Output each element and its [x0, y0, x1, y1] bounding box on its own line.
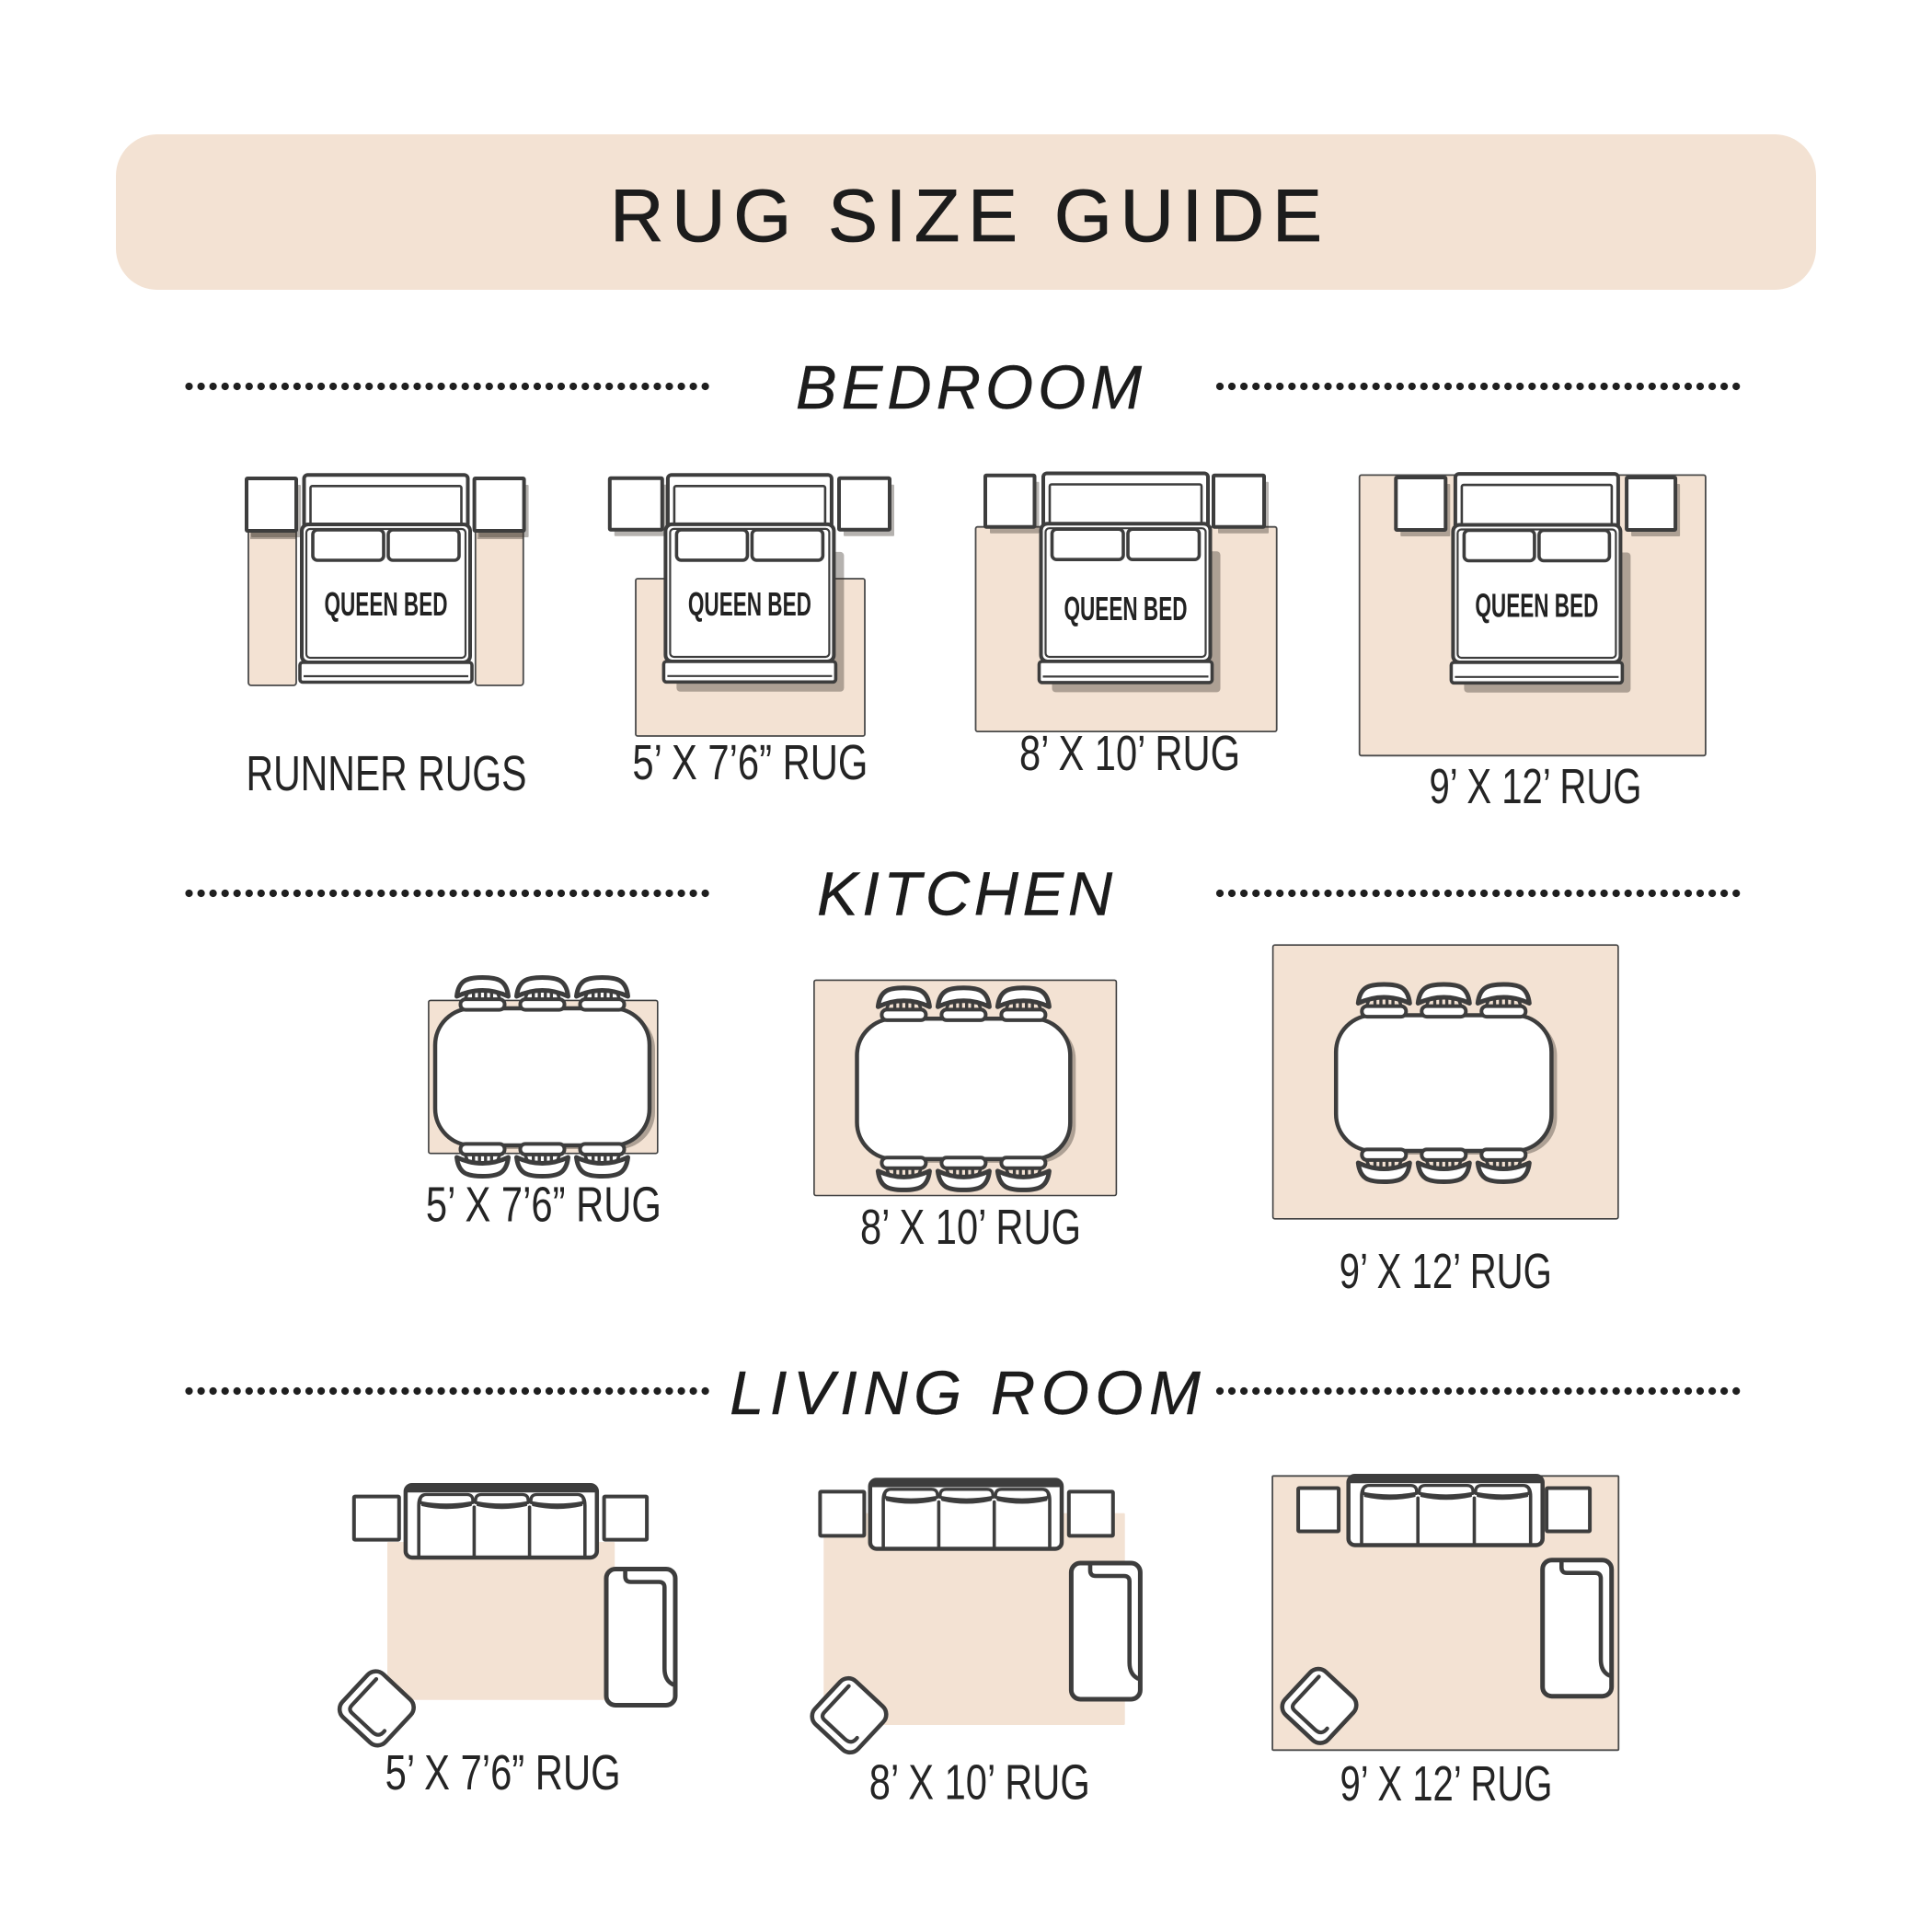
svg-text:5’ X 7’6” RUG: 5’ X 7’6” RUG: [426, 1178, 661, 1233]
svg-text:9’ X 12’ RUG: 9’ X 12’ RUG: [1340, 1244, 1552, 1299]
svg-text:BEDROOM: BEDROOM: [796, 353, 1146, 422]
svg-text:RUNNER RUGS: RUNNER RUGS: [247, 746, 527, 801]
svg-text:8’ X 10’ RUG: 8’ X 10’ RUG: [1019, 726, 1240, 781]
svg-text:9’ X 12’ RUG: 9’ X 12’ RUG: [1430, 759, 1642, 814]
svg-text:8’ X 10’ RUG: 8’ X 10’ RUG: [869, 1754, 1090, 1810]
svg-text:5’ X 7’6” RUG: 5’ X 7’6” RUG: [385, 1745, 621, 1800]
svg-text:5’ X 7’6” RUG: 5’ X 7’6” RUG: [632, 735, 868, 790]
svg-text:QUEEN BED: QUEEN BED: [325, 585, 448, 623]
svg-text:QUEEN BED: QUEEN BED: [1064, 590, 1188, 627]
svg-text:QUEEN BED: QUEEN BED: [1475, 587, 1598, 625]
svg-text:QUEEN BED: QUEEN BED: [688, 585, 811, 623]
svg-text:KITCHEN: KITCHEN: [817, 859, 1117, 928]
svg-text:8’ X 10’ RUG: 8’ X 10’ RUG: [860, 1200, 1081, 1255]
svg-text:LIVING ROOM: LIVING ROOM: [730, 1359, 1206, 1428]
svg-text:RUG SIZE GUIDE: RUG SIZE GUIDE: [610, 175, 1330, 258]
svg-text:9’ X 12’ RUG: 9’ X 12’ RUG: [1340, 1756, 1553, 1811]
